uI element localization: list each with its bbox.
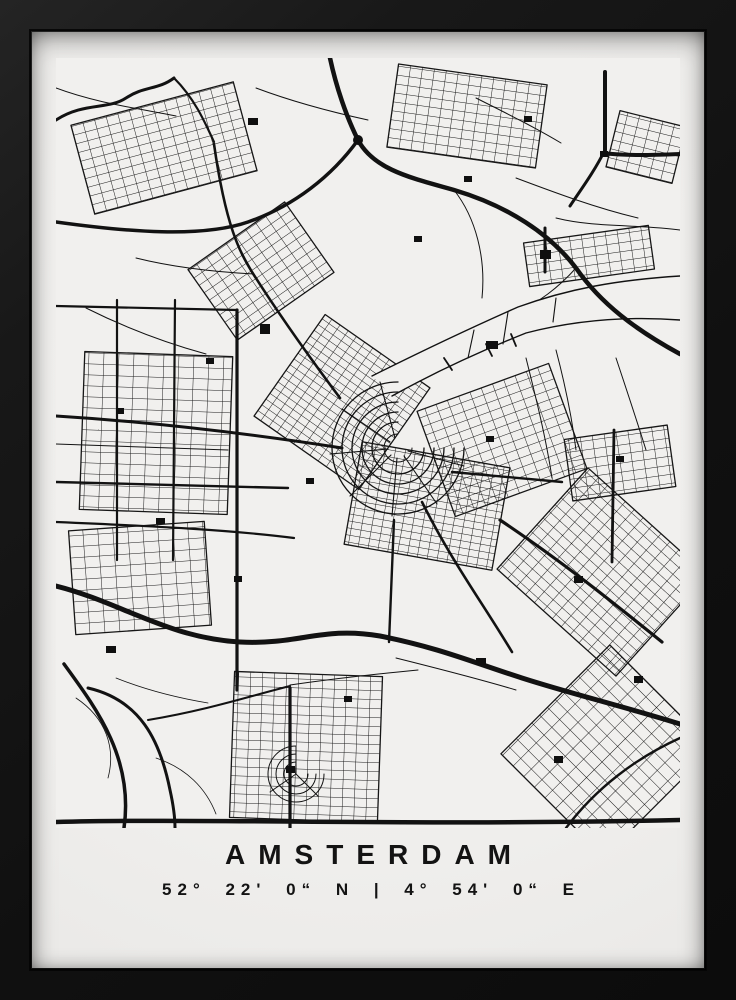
poster-paper: AMSTERDAM 52° 22' 0“ N | 4° 54' 0“ E <box>32 32 704 968</box>
poster-caption: AMSTERDAM 52° 22' 0“ N | 4° 54' 0“ E <box>32 840 704 900</box>
amsterdam-street-map <box>56 58 680 828</box>
city-title: AMSTERDAM <box>225 840 524 871</box>
city-coordinates: 52° 22' 0“ N | 4° 54' 0“ E <box>162 880 580 900</box>
framed-map-poster: AMSTERDAM 52° 22' 0“ N | 4° 54' 0“ E <box>0 0 736 1000</box>
